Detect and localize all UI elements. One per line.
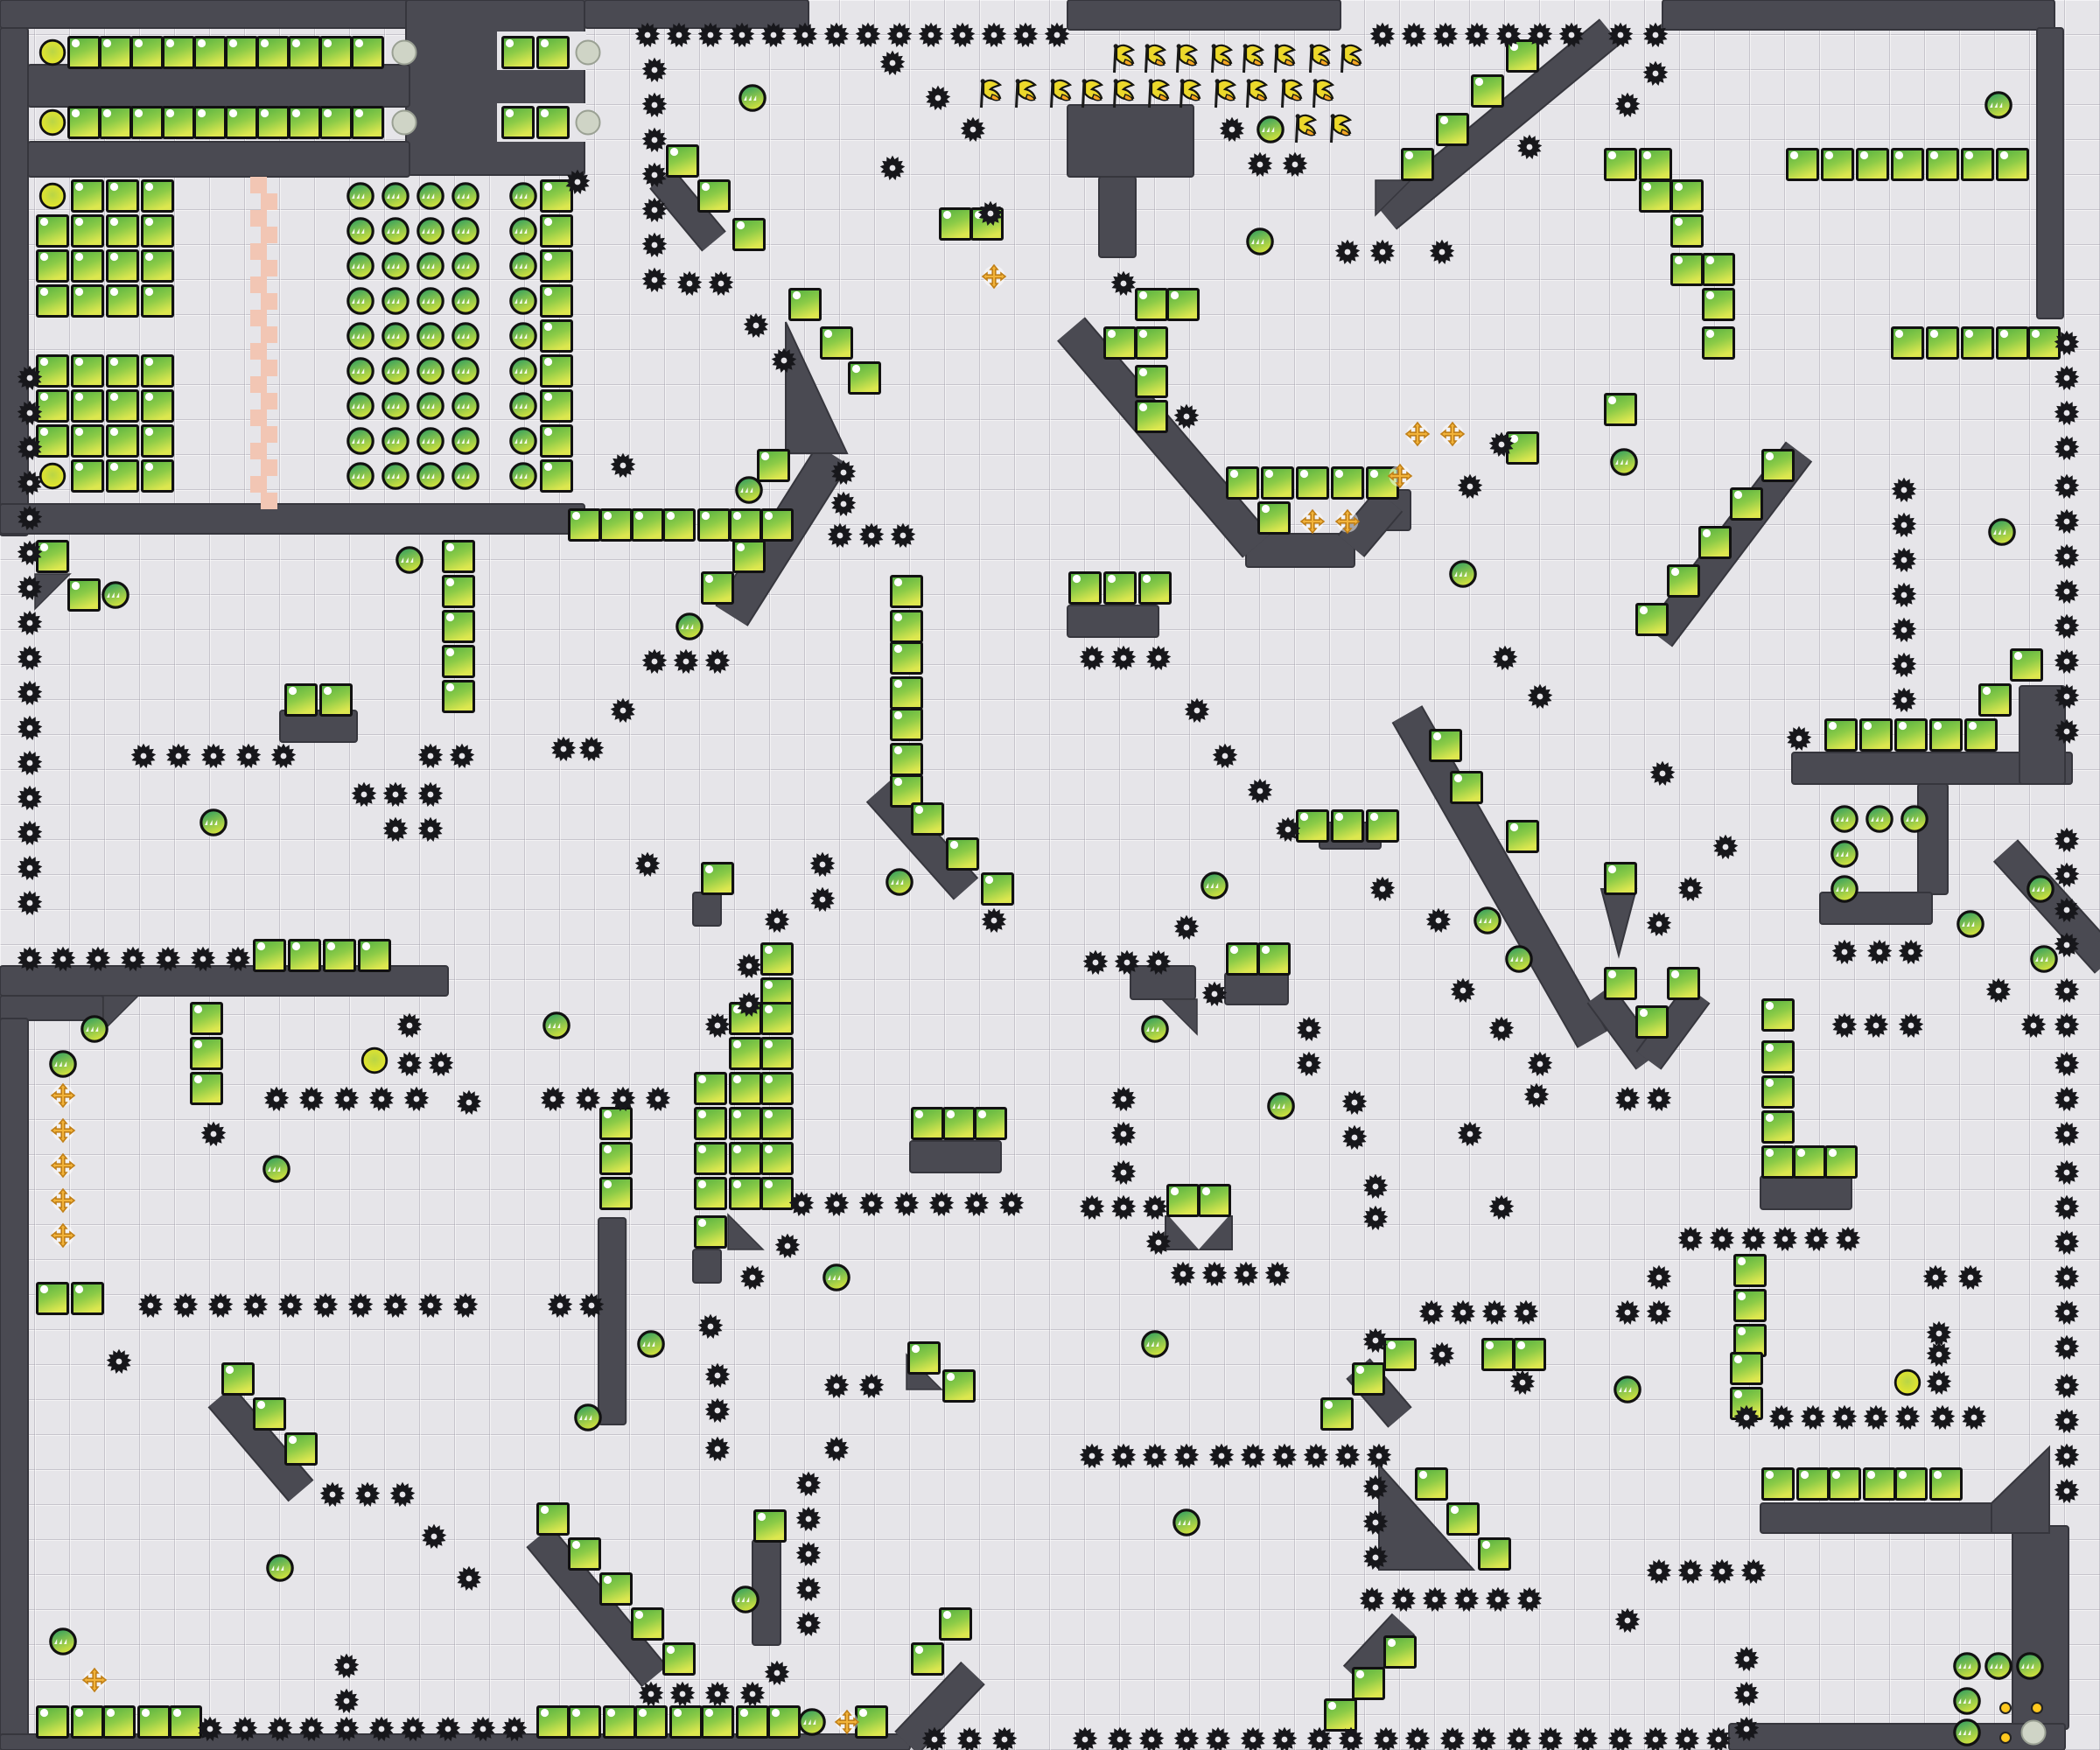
saw-gear-icon[interactable] (705, 649, 731, 674)
green-block-tile[interactable] (73, 251, 103, 282)
green-block-tile[interactable] (143, 181, 173, 212)
saw-gear-icon[interactable] (1986, 978, 2012, 1003)
saw-gear-icon[interactable] (705, 1363, 731, 1388)
green-block-tile[interactable] (38, 426, 68, 457)
green-orb-icon[interactable] (383, 184, 408, 208)
flag-icon[interactable] (1247, 79, 1266, 108)
green-block-tile[interactable] (444, 542, 474, 572)
saw-gear-icon[interactable] (1769, 1405, 1795, 1430)
green-block-tile[interactable] (1763, 1112, 1794, 1143)
saw-gear-icon[interactable] (1892, 583, 1917, 607)
saw-gear-icon[interactable] (1220, 117, 1245, 142)
saw-gear-icon[interactable] (1832, 940, 1858, 964)
green-block-tile[interactable] (1704, 255, 1734, 285)
green-block-tile[interactable] (353, 108, 383, 138)
compass-cross-icon[interactable] (983, 265, 1005, 288)
saw-gear-icon[interactable] (404, 1087, 430, 1111)
green-block-tile[interactable] (542, 461, 572, 492)
green-orb-icon[interactable] (453, 254, 478, 278)
saw-gear-icon[interactable] (831, 492, 857, 516)
saw-gear-icon[interactable] (313, 1293, 339, 1318)
saw-gear-icon[interactable] (642, 128, 668, 152)
saw-gear-icon[interactable] (1143, 1195, 1168, 1220)
green-orb-icon[interactable] (453, 324, 478, 348)
green-orb-icon[interactable] (418, 324, 443, 348)
saw-gear-icon[interactable] (1465, 23, 1490, 47)
saw-gear-icon[interactable] (173, 1293, 199, 1318)
saw-gear-icon[interactable] (1892, 688, 1917, 712)
green-block-tile[interactable] (1322, 1399, 1353, 1430)
green-block-tile[interactable] (1137, 367, 1167, 397)
saw-gear-icon[interactable] (950, 23, 976, 47)
saw-gear-icon[interactable] (1248, 779, 1273, 803)
saw-gear-icon[interactable] (1647, 1559, 1672, 1584)
saw-gear-icon[interactable] (383, 1293, 409, 1318)
saw-gear-icon[interactable] (1524, 1083, 1550, 1108)
green-block-tile[interactable] (73, 426, 103, 457)
green-block-tile[interactable] (1298, 811, 1328, 842)
flag-icon[interactable] (1331, 114, 1350, 143)
saw-gear-icon[interactable] (1111, 1160, 1137, 1185)
saw-gear-icon[interactable] (824, 23, 850, 47)
green-orb-icon[interactable] (1248, 229, 1272, 254)
green-block-tile[interactable] (703, 864, 733, 894)
saw-gear-icon[interactable] (674, 649, 699, 674)
saw-gear-icon[interactable] (1482, 1300, 1508, 1325)
green-orb-icon[interactable] (1986, 93, 2011, 117)
green-block-tile[interactable] (1763, 1469, 1794, 1500)
green-block-tile[interactable] (73, 391, 103, 422)
green-orb-icon[interactable] (51, 1629, 75, 1654)
green-block-tile[interactable] (1966, 720, 1997, 751)
green-orb-icon[interactable] (201, 810, 226, 835)
saw-gear-icon[interactable] (740, 1682, 766, 1706)
coin-dot-icon[interactable] (2000, 1703, 2011, 1713)
green-orb-icon[interactable] (737, 478, 761, 502)
green-block-tile[interactable] (703, 1707, 733, 1738)
saw-gear-icon[interactable] (1335, 1444, 1361, 1468)
saw-gear-icon[interactable] (1643, 61, 1669, 86)
flag-icon[interactable] (1177, 44, 1196, 73)
saw-gear-icon[interactable] (926, 86, 951, 110)
saw-gear-icon[interactable] (1615, 93, 1641, 117)
green-orb-icon[interactable] (511, 394, 535, 418)
green-orb-icon[interactable] (511, 219, 535, 243)
green-orb-icon[interactable] (824, 1265, 849, 1290)
green-block-tile[interactable] (1823, 150, 1853, 180)
green-block-tile[interactable] (892, 745, 922, 775)
saw-gear-icon[interactable] (1272, 1727, 1298, 1750)
saw-gear-icon[interactable] (352, 782, 377, 807)
green-block-tile[interactable] (542, 356, 572, 387)
green-block-tile[interactable] (1672, 255, 1703, 285)
saw-gear-icon[interactable] (1647, 1087, 1672, 1111)
green-orb-icon[interactable] (740, 86, 765, 110)
saw-gear-icon[interactable] (1643, 1727, 1669, 1750)
saw-gear-icon[interactable] (2054, 1335, 2080, 1360)
green-block-tile[interactable] (696, 1179, 726, 1209)
green-block-tile[interactable] (1637, 605, 1668, 635)
saw-gear-icon[interactable] (1647, 912, 1672, 936)
green-block-tile[interactable] (108, 251, 138, 282)
green-block-tile[interactable] (731, 1039, 761, 1069)
green-orb-icon[interactable] (1955, 1720, 1979, 1745)
green-orb-icon[interactable] (453, 394, 478, 418)
green-block-tile[interactable] (1070, 573, 1101, 604)
saw-gear-icon[interactable] (1528, 684, 1553, 709)
saw-gear-icon[interactable] (1615, 1300, 1641, 1325)
green-orb-icon[interactable] (1955, 1654, 1979, 1678)
saw-gear-icon[interactable] (1146, 646, 1172, 670)
compass-cross-icon[interactable] (1301, 510, 1324, 533)
green-block-tile[interactable] (1354, 1669, 1384, 1699)
saw-gear-icon[interactable] (1080, 1444, 1105, 1468)
saw-gear-icon[interactable] (1342, 1090, 1368, 1115)
green-block-tile[interactable] (2029, 328, 2060, 359)
green-block-tile[interactable] (227, 38, 257, 68)
green-block-tile[interactable] (913, 1644, 943, 1675)
flag-icon[interactable] (1082, 79, 1102, 108)
saw-gear-icon[interactable] (1507, 1727, 1532, 1750)
green-block-tile[interactable] (696, 1144, 726, 1174)
saw-gear-icon[interactable] (201, 1122, 227, 1146)
green-block-tile[interactable] (605, 1707, 635, 1738)
saw-gear-icon[interactable] (880, 51, 906, 75)
saw-gear-icon[interactable] (1958, 1265, 1984, 1290)
saw-gear-icon[interactable] (201, 744, 227, 768)
saw-gear-icon[interactable] (1899, 940, 1924, 964)
saw-gear-icon[interactable] (1174, 915, 1200, 940)
green-block-tile[interactable] (192, 1074, 222, 1104)
green-orb-icon[interactable] (1958, 912, 1983, 936)
saw-gear-icon[interactable] (1454, 1587, 1480, 1612)
saw-gear-icon[interactable] (17, 716, 43, 740)
green-block-tile[interactable] (1669, 969, 1699, 999)
green-block-tile[interactable] (892, 577, 922, 607)
green-block-tile[interactable] (1105, 573, 1136, 604)
saw-gear-icon[interactable] (1647, 1265, 1672, 1290)
green-block-tile[interactable] (1298, 468, 1328, 499)
green-block-tile[interactable] (143, 391, 173, 422)
green-block-tile[interactable] (892, 678, 922, 709)
saw-gear-icon[interactable] (1143, 1444, 1168, 1468)
green-block-tile[interactable] (1893, 328, 1923, 359)
green-block-tile[interactable] (731, 1109, 761, 1139)
green-block-tile[interactable] (1140, 573, 1171, 604)
saw-gear-icon[interactable] (1615, 1087, 1641, 1111)
saw-gear-icon[interactable] (1678, 1559, 1704, 1584)
saw-gear-icon[interactable] (1675, 1727, 1700, 1750)
green-block-tile[interactable] (1385, 1637, 1416, 1668)
saw-gear-icon[interactable] (1335, 240, 1361, 264)
green-block-tile[interactable] (1963, 328, 1993, 359)
green-block-tile[interactable] (503, 108, 534, 138)
green-block-tile[interactable] (1928, 328, 1958, 359)
green-block-tile[interactable] (1704, 328, 1734, 359)
saw-gear-icon[interactable] (2054, 649, 2080, 674)
green-orb-icon[interactable] (418, 464, 443, 488)
green-orb-icon[interactable] (511, 254, 535, 278)
saw-gear-icon[interactable] (457, 1566, 482, 1591)
green-block-tile[interactable] (444, 647, 474, 677)
green-block-tile[interactable] (503, 38, 534, 68)
saw-gear-icon[interactable] (1080, 646, 1105, 670)
green-block-tile[interactable] (108, 356, 138, 387)
green-block-tile[interactable] (38, 391, 68, 422)
saw-gear-icon[interactable] (1202, 1262, 1228, 1286)
flag-icon[interactable] (1341, 44, 1361, 73)
green-block-tile[interactable] (769, 1707, 800, 1738)
saw-gear-icon[interactable] (1440, 1727, 1466, 1750)
green-orb-icon[interactable] (733, 1587, 758, 1612)
saw-gear-icon[interactable] (740, 1265, 766, 1290)
saw-gear-icon[interactable] (107, 1349, 132, 1374)
saw-gear-icon[interactable] (646, 1087, 671, 1111)
green-block-tile[interactable] (38, 356, 68, 387)
green-block-tile[interactable] (542, 391, 572, 422)
saw-gear-icon[interactable] (1741, 1559, 1767, 1584)
flag-icon[interactable] (981, 79, 1000, 108)
green-block-tile[interactable] (195, 38, 226, 68)
green-orb-icon[interactable] (418, 254, 443, 278)
saw-gear-icon[interactable] (264, 1087, 290, 1111)
saw-gear-icon[interactable] (1510, 1370, 1536, 1395)
green-block-tile[interactable] (538, 38, 569, 68)
flag-icon[interactable] (1114, 79, 1133, 108)
green-block-tile[interactable] (444, 612, 474, 642)
saw-gear-icon[interactable] (17, 856, 43, 880)
green-block-tile[interactable] (790, 290, 821, 320)
saw-gear-icon[interactable] (369, 1087, 395, 1111)
saw-gear-icon[interactable] (208, 1293, 234, 1318)
saw-gear-icon[interactable] (775, 1234, 801, 1258)
green-block-tile[interactable] (857, 1707, 887, 1738)
green-block-tile[interactable] (1137, 402, 1167, 432)
green-orb-icon[interactable] (383, 324, 408, 348)
saw-gear-icon[interactable] (1713, 835, 1739, 859)
saw-gear-icon[interactable] (859, 1374, 885, 1398)
saw-gear-icon[interactable] (1370, 240, 1396, 264)
green-block-tile[interactable] (1928, 150, 1958, 180)
green-orb-icon[interactable] (418, 184, 443, 208)
saw-gear-icon[interactable] (1864, 1405, 1889, 1430)
green-block-tile[interactable] (73, 1284, 103, 1314)
green-orb-icon[interactable] (1475, 908, 1500, 933)
green-block-tile[interactable] (192, 1004, 222, 1034)
green-orb-icon[interactable] (348, 324, 373, 348)
green-block-tile[interactable] (255, 1399, 285, 1430)
green-block-tile[interactable] (1368, 811, 1398, 842)
saw-gear-icon[interactable] (796, 1577, 822, 1601)
saw-gear-icon[interactable] (579, 737, 605, 761)
saw-gear-icon[interactable] (1297, 1052, 1322, 1076)
green-block-tile[interactable] (38, 216, 68, 247)
saw-gear-icon[interactable] (1363, 1174, 1389, 1199)
flag-icon[interactable] (1016, 79, 1035, 108)
saw-gear-icon[interactable] (611, 453, 636, 478)
green-block-tile[interactable] (353, 38, 383, 68)
saw-gear-icon[interactable] (2054, 1265, 2080, 1290)
gray-circle-icon[interactable] (577, 111, 600, 135)
green-block-tile[interactable] (738, 1707, 768, 1738)
green-block-tile[interactable] (601, 1109, 632, 1139)
green-orb-icon[interactable] (383, 429, 408, 453)
green-block-tile[interactable] (731, 1144, 761, 1174)
saw-gear-icon[interactable] (1706, 1727, 1732, 1750)
saw-gear-icon[interactable] (1962, 1405, 1987, 1430)
yellow-orb-icon[interactable] (40, 464, 65, 488)
green-block-tile[interactable] (108, 461, 138, 492)
green-block-tile[interactable] (755, 1511, 786, 1542)
saw-gear-icon[interactable] (737, 954, 762, 978)
green-block-tile[interactable] (38, 542, 68, 572)
saw-gear-icon[interactable] (2054, 863, 2080, 887)
saw-gear-icon[interactable] (2054, 1013, 2080, 1038)
saw-gear-icon[interactable] (1836, 1227, 1861, 1251)
green-block-tile[interactable] (1259, 503, 1290, 534)
saw-gear-icon[interactable] (1734, 1647, 1760, 1671)
saw-gear-icon[interactable] (334, 1087, 360, 1111)
green-block-tile[interactable] (360, 941, 390, 971)
saw-gear-icon[interactable] (2054, 1374, 2080, 1398)
green-block-tile[interactable] (944, 1109, 975, 1139)
saw-gear-icon[interactable] (709, 271, 734, 296)
green-block-tile[interactable] (1641, 150, 1671, 180)
green-block-tile[interactable] (1896, 1469, 1927, 1500)
green-orb-icon[interactable] (348, 289, 373, 313)
saw-gear-icon[interactable] (450, 744, 475, 768)
green-orb-icon[interactable] (511, 324, 535, 348)
saw-gear-icon[interactable] (1608, 1727, 1634, 1750)
saw-gear-icon[interactable] (1241, 1727, 1266, 1750)
saw-gear-icon[interactable] (1892, 653, 1917, 677)
saw-gear-icon[interactable] (1171, 1262, 1196, 1286)
green-orb-icon[interactable] (397, 548, 422, 572)
green-block-tile[interactable] (1735, 1326, 1766, 1356)
green-orb-icon[interactable] (677, 614, 702, 639)
saw-gear-icon[interactable] (1304, 1444, 1329, 1468)
saw-gear-icon[interactable] (1419, 1300, 1445, 1325)
saw-gear-icon[interactable] (383, 817, 409, 842)
green-block-tile[interactable] (850, 363, 880, 394)
green-block-tile[interactable] (1998, 150, 2028, 180)
saw-gear-icon[interactable] (1615, 1608, 1641, 1633)
green-block-tile[interactable] (542, 216, 572, 247)
saw-gear-icon[interactable] (2054, 1444, 2080, 1468)
green-orb-icon[interactable] (800, 1710, 824, 1734)
saw-gear-icon[interactable] (243, 1293, 269, 1318)
green-block-tile[interactable] (731, 510, 761, 541)
green-block-tile[interactable] (1137, 328, 1167, 359)
saw-gear-icon[interactable] (2054, 509, 2080, 534)
green-block-tile[interactable] (538, 1504, 569, 1535)
saw-gear-icon[interactable] (992, 1727, 1018, 1750)
saw-gear-icon[interactable] (1710, 1559, 1735, 1584)
green-block-tile[interactable] (699, 181, 730, 212)
saw-gear-icon[interactable] (418, 1293, 444, 1318)
green-orb-icon[interactable] (348, 219, 373, 243)
saw-gear-icon[interactable] (418, 782, 444, 807)
green-orb-icon[interactable] (1143, 1017, 1167, 1041)
green-block-tile[interactable] (542, 426, 572, 457)
green-block-tile[interactable] (73, 181, 103, 212)
saw-gear-icon[interactable] (1892, 618, 1917, 642)
saw-gear-icon[interactable] (2054, 1230, 2080, 1255)
saw-gear-icon[interactable] (541, 1087, 566, 1111)
green-block-tile[interactable] (38, 1707, 68, 1738)
saw-gear-icon[interactable] (705, 1682, 731, 1706)
saw-gear-icon[interactable] (1423, 1587, 1448, 1612)
flag-icon[interactable] (1149, 79, 1168, 108)
saw-gear-icon[interactable] (1111, 271, 1137, 296)
green-orb-icon[interactable] (51, 1052, 75, 1076)
saw-gear-icon[interactable] (1486, 1587, 1511, 1612)
green-block-tile[interactable] (633, 1609, 663, 1640)
saw-gear-icon[interactable] (1174, 404, 1200, 429)
green-block-tile[interactable] (1896, 720, 1927, 751)
green-block-tile[interactable] (601, 510, 632, 541)
coin-dot-icon[interactable] (2000, 1732, 2011, 1743)
saw-gear-icon[interactable] (1241, 1444, 1266, 1468)
saw-gear-icon[interactable] (422, 1524, 447, 1549)
green-block-tile[interactable] (1354, 1364, 1384, 1395)
green-block-tile[interactable] (101, 108, 131, 138)
green-block-tile[interactable] (2012, 650, 2042, 681)
green-block-tile[interactable] (73, 356, 103, 387)
saw-gear-icon[interactable] (891, 523, 916, 548)
green-block-tile[interactable] (1641, 181, 1671, 212)
green-block-tile[interactable] (164, 108, 194, 138)
green-orb-icon[interactable] (1832, 877, 1857, 901)
green-block-tile[interactable] (195, 108, 226, 138)
saw-gear-icon[interactable] (334, 1689, 360, 1713)
green-orb-icon[interactable] (383, 289, 408, 313)
green-block-tile[interactable] (601, 1574, 632, 1605)
saw-gear-icon[interactable] (1391, 1587, 1417, 1612)
green-orb-icon[interactable] (82, 1017, 107, 1041)
yellow-orb-icon[interactable] (40, 184, 65, 208)
green-block-tile[interactable] (762, 1144, 793, 1174)
green-block-tile[interactable] (1931, 1469, 1962, 1500)
saw-gear-icon[interactable] (2021, 1013, 2047, 1038)
green-block-tile[interactable] (1137, 290, 1167, 320)
green-block-tile[interactable] (286, 1434, 317, 1465)
saw-gear-icon[interactable] (1111, 1444, 1137, 1468)
saw-gear-icon[interactable] (2054, 474, 2080, 499)
saw-gear-icon[interactable] (1517, 135, 1543, 159)
saw-gear-icon[interactable] (2054, 1087, 2080, 1111)
saw-gear-icon[interactable] (1430, 1342, 1455, 1367)
green-block-tile[interactable] (69, 38, 100, 68)
flag-icon[interactable] (1243, 44, 1263, 73)
saw-gear-icon[interactable] (1297, 1017, 1322, 1041)
green-orb-icon[interactable] (511, 464, 535, 488)
saw-gear-icon[interactable] (828, 523, 853, 548)
saw-gear-icon[interactable] (1206, 1727, 1231, 1750)
saw-gear-icon[interactable] (1472, 1727, 1497, 1750)
green-block-tile[interactable] (1763, 1077, 1794, 1108)
green-orb-icon[interactable] (264, 1157, 289, 1181)
green-block-tile[interactable] (1732, 1354, 1762, 1384)
saw-gear-icon[interactable] (859, 523, 885, 548)
flag-icon[interactable] (1313, 79, 1333, 108)
flag-icon[interactable] (1296, 114, 1315, 143)
green-block-tile[interactable] (139, 1707, 170, 1738)
green-block-tile[interactable] (762, 1004, 793, 1034)
saw-gear-icon[interactable] (810, 887, 836, 912)
green-block-tile[interactable] (73, 461, 103, 492)
green-block-tile[interactable] (321, 685, 352, 716)
